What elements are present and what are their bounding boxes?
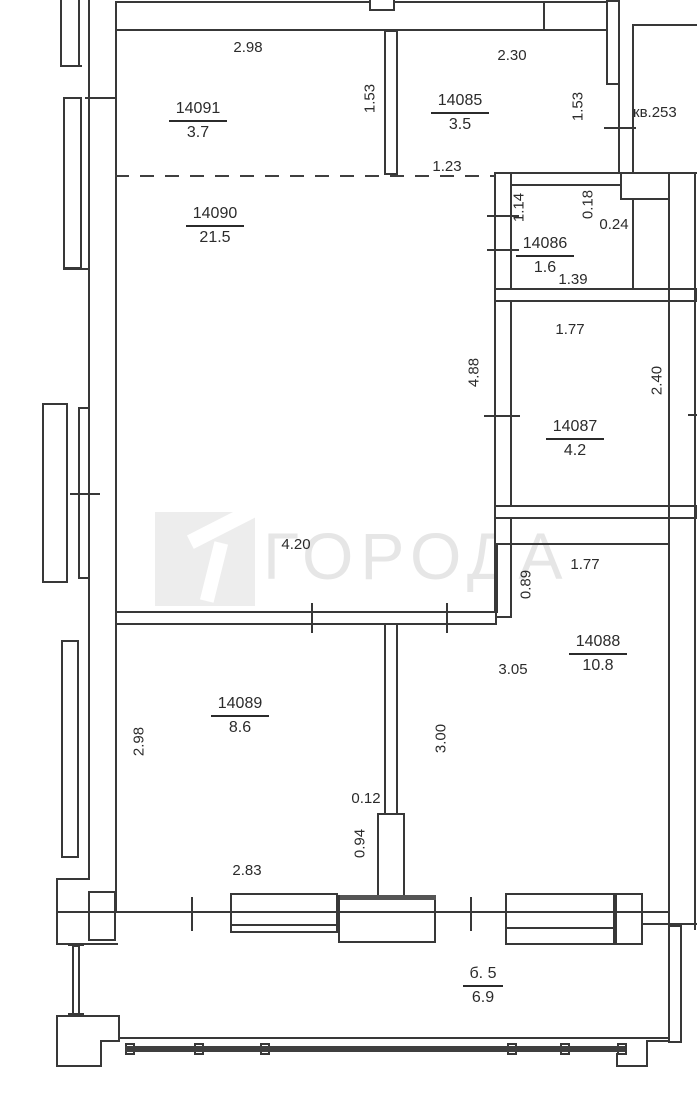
balcony-corner: [616, 1065, 648, 1067]
left-window-upper: [63, 97, 82, 269]
dimension-label: 1.53: [570, 72, 587, 142]
wall-segment: [632, 200, 634, 290]
wall-segment: [68, 944, 84, 946]
dimension-tick: [311, 603, 313, 633]
room-label-balcony: б. 5 6.9: [428, 965, 538, 1006]
wall-segment: [56, 943, 118, 945]
room-label-14090: 14090 21.5: [160, 205, 270, 246]
dimension-label: 0.12: [331, 790, 401, 807]
dimension-label: 2.98: [213, 39, 283, 56]
room-label-14088: 14088 10.8: [543, 633, 653, 674]
wall-neighbor-line: [618, 84, 620, 174]
dimension-tick: [191, 897, 193, 931]
dimension-label: 3.05: [478, 661, 548, 678]
wall-segment: [85, 97, 117, 99]
neighbor-unit-outline: [632, 24, 697, 174]
dimension-label: 2.98: [131, 707, 148, 777]
wall-14086-14087: [494, 288, 697, 302]
dimension-label: 2.30: [477, 47, 547, 64]
room-area: 6.9: [428, 989, 538, 1007]
wall-14088-top: [497, 543, 668, 545]
wall-segment: [496, 543, 498, 613]
wall-bottom-main: [58, 911, 668, 913]
dimension-label: 0.94: [352, 809, 369, 879]
balcony-corner: [56, 1015, 118, 1017]
wall-segment: [78, 0, 80, 66]
dimension-label: 1.53: [362, 64, 379, 134]
balcony-glazing-line: [120, 1037, 668, 1039]
dimension-label: 0.18: [580, 170, 597, 240]
room-number: 14089: [211, 695, 270, 717]
wall-right-inner: [668, 172, 670, 932]
dimension-label: 0.89: [518, 550, 535, 620]
room-number: 14087: [546, 418, 605, 440]
balcony-corner: [56, 1065, 102, 1067]
room-area: 3.7: [143, 124, 253, 142]
wall-segment: [60, 0, 62, 66]
wall-segment: [543, 1, 545, 31]
wall-segment: [56, 878, 90, 880]
dashed-boundary: [115, 175, 495, 177]
dimension-label: 1.77: [550, 556, 620, 573]
wall-segment: [643, 923, 697, 925]
room-label-14087: 14087 4.2: [520, 418, 630, 459]
room-area: 4.2: [520, 442, 630, 460]
wall-neighbor-vertical: [606, 0, 620, 85]
wall-segment: [620, 172, 622, 200]
room-number: 14091: [169, 100, 228, 122]
dimension-label: 1.39: [538, 271, 608, 288]
wall-left-inner: [115, 1, 117, 912]
balcony-corner: [100, 1040, 120, 1042]
wall-left-outer: [88, 0, 90, 878]
room-number: б. 5: [463, 965, 504, 987]
room-area: 10.8: [543, 657, 653, 675]
dimension-tick: [470, 897, 472, 931]
balcony-corner: [646, 1040, 668, 1042]
wall-14090-14089: [115, 611, 497, 625]
wall-right-outer: [694, 172, 696, 930]
dimension-label: 1.14: [511, 173, 528, 243]
dimension-tick: [688, 414, 697, 416]
dimension-label: 1.77: [535, 321, 605, 338]
left-window-lower: [61, 640, 79, 858]
dimension-tick: [70, 493, 100, 495]
window-sill: [507, 927, 613, 929]
room-area: 21.5: [160, 229, 270, 247]
floor-plan: ГОРОДА: [0, 0, 697, 1096]
room-label-14091: 14091 3.7: [143, 100, 253, 141]
balcony-corner: [646, 1040, 648, 1067]
dimension-label: 4.88: [466, 338, 483, 408]
room-label-14089: 14089 8.6: [185, 695, 295, 736]
balcony-connector: [72, 945, 80, 1015]
dimension-tick: [446, 603, 448, 633]
room-label-14085: 14085 3.5: [405, 92, 515, 133]
window-14088: [505, 893, 615, 945]
dimension-label: 3.00: [433, 704, 450, 774]
dimension-label: 1.23: [412, 158, 482, 175]
dimension-label: 2.83: [212, 862, 282, 879]
wall-segment: [63, 268, 90, 270]
wall-top-notch: [369, 0, 395, 11]
balcony-glazing-band: [125, 1046, 625, 1052]
left-bay-outer: [42, 403, 68, 583]
room-area: 8.6: [185, 719, 295, 737]
room-number: 14085: [431, 92, 490, 114]
room-number: 14090: [186, 205, 245, 227]
partition-14091-14085: [384, 30, 398, 175]
dimension-tick: [604, 127, 636, 129]
dimension-tick: [484, 415, 520, 417]
wall-14087-14088: [494, 505, 697, 519]
right-lower-wall: [668, 925, 682, 1043]
window-14089: [230, 893, 338, 933]
balcony-corner: [100, 1040, 102, 1067]
neighbor-unit-label: кв.253: [633, 104, 677, 121]
watermark-logo-icon: [155, 512, 255, 606]
balcony-corner: [56, 1015, 58, 1067]
partition-14089-14088: [384, 623, 398, 815]
dimension-label: 2.40: [649, 346, 666, 416]
bottom-right-block: [615, 893, 643, 945]
window-sill: [231, 924, 337, 926]
bottom-wall-chunk: [338, 895, 436, 943]
left-bottom-window: [88, 891, 116, 941]
wall-dark-strip: [340, 895, 436, 900]
wall-top-band: [115, 1, 609, 31]
room-area: 3.5: [405, 116, 515, 134]
room-label-14086: 14086 1.6: [490, 235, 600, 276]
room-number: 14088: [569, 633, 628, 655]
wall-segment: [620, 198, 670, 200]
dimension-label: 4.20: [261, 536, 331, 553]
wall-segment: [60, 65, 82, 67]
